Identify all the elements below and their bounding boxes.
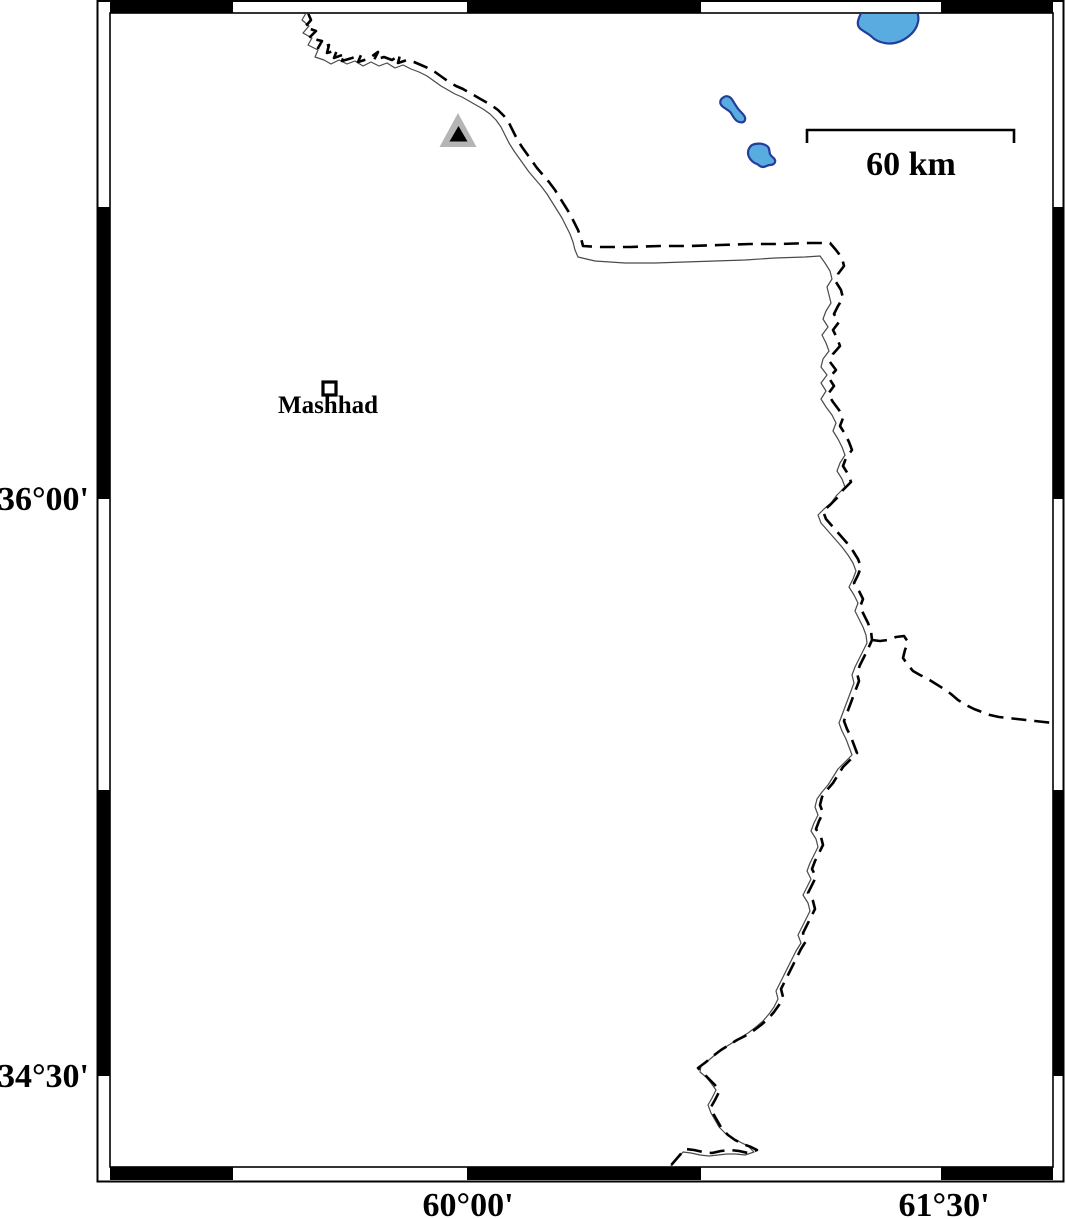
- city-label: Mashhad: [278, 392, 378, 419]
- frame-band-left: [98, 207, 110, 499]
- longitude-label-right: 61°30': [898, 1187, 989, 1219]
- latitude-label-lower: 34°30': [0, 1058, 89, 1095]
- frame-band-right: [1053, 790, 1063, 1076]
- frame-inner-rect: [110, 13, 1053, 1167]
- frame-band-bottom: [110, 1167, 233, 1180]
- latitude-label-upper: 36°00': [0, 481, 89, 518]
- frame-band-top: [941, 2, 1053, 13]
- map-svg: Mashhad 60 km 36°00' 34°30' 60°00' 61°30…: [0, 0, 1066, 1219]
- frame-band-bottom: [941, 1167, 1053, 1180]
- frame-band-right: [1053, 207, 1063, 499]
- map-canvas: Mashhad 60 km 36°00' 34°30' 60°00' 61°30…: [0, 0, 1066, 1219]
- frame-band-left: [98, 790, 110, 1076]
- frame-band-top: [467, 2, 701, 13]
- scale-bar-label: 60 km: [866, 146, 956, 183]
- frame-band-top: [110, 2, 233, 13]
- longitude-label-left: 60°00': [422, 1187, 513, 1219]
- frame-band-bottom: [467, 1167, 701, 1180]
